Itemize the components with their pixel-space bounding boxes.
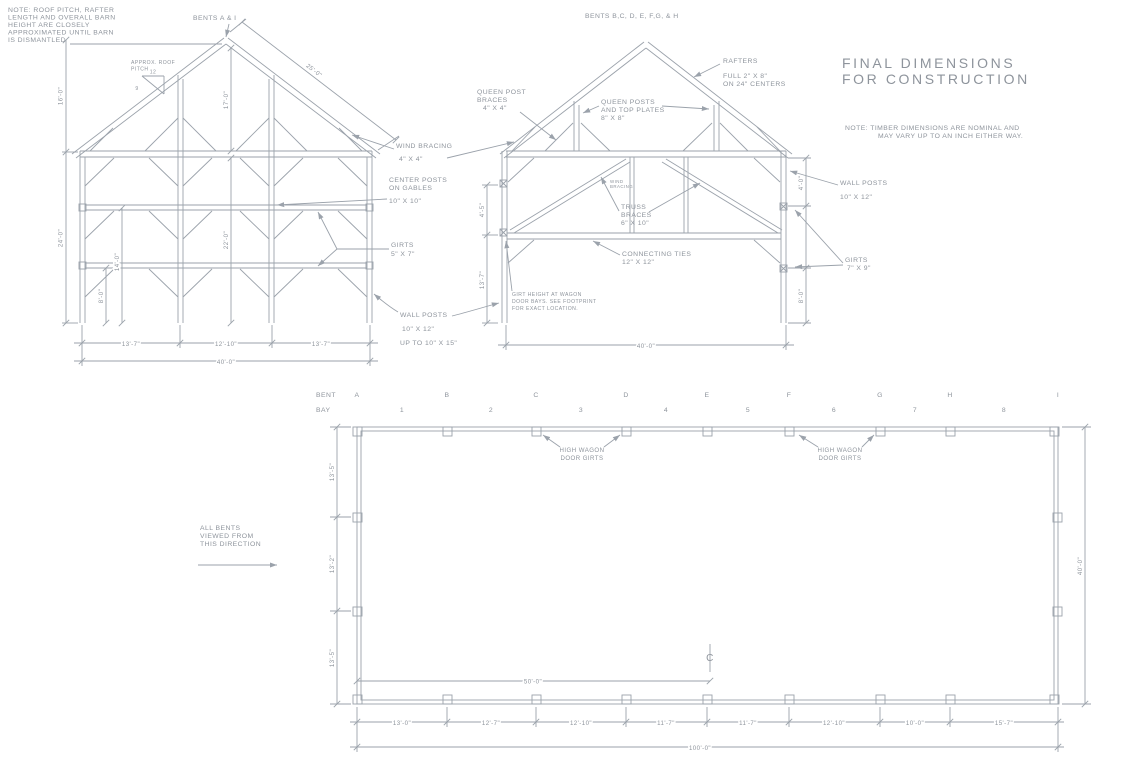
bent-letter: A — [355, 392, 360, 399]
callout-rafters: ON 24" CENTERS — [723, 81, 786, 88]
barn-blueprint: NOTE: ROOF PITCH, RAFTER LENGTH AND OVER… — [0, 0, 1140, 760]
dim-roof-height: 16'-0" — [58, 87, 65, 105]
bay-number: 2 — [489, 407, 493, 414]
note-top-left-line: NOTE: ROOF PITCH, RAFTER — [8, 7, 114, 14]
dim-plan-bay: 13'-0" — [393, 720, 411, 727]
callout-wall-posts-gable: 10" X 12" — [402, 326, 434, 333]
leader-lines — [226, 24, 843, 316]
gable-bent-dimensions — [62, 19, 399, 366]
dim-plan-bay: 12'-10" — [570, 720, 592, 727]
dim-plan-right: 40'-0" — [1077, 557, 1084, 575]
view-note: THIS DIRECTION — [200, 541, 261, 548]
view-note: ALL BENTS — [200, 525, 240, 532]
dim-plan-bay: 11'-7" — [739, 720, 757, 727]
callout-wind-bracing: 4" X 4" — [399, 156, 423, 163]
callout-truss-braces: TRUSS — [621, 204, 646, 211]
dim-plan-left: 13'-5" — [329, 649, 336, 667]
dim-plan-bay: 12'-7" — [482, 720, 500, 727]
bay-number: 6 — [832, 407, 836, 414]
callout-truss-braces: BRACES — [621, 212, 652, 219]
callout-queen-post-braces: 4" X 4" — [483, 105, 507, 112]
dim-right-upper: 4'-0" — [798, 176, 805, 190]
drawing-title: FOR CONSTRUCTION — [842, 71, 1030, 87]
interior-bent-heading: BENTS B,C, D, E, F,G, & H — [585, 13, 679, 20]
dim-overall-interior: 40'-0" — [637, 343, 655, 350]
bent-row-label: BENT — [316, 392, 336, 399]
note-top-left-line: HEIGHT ARE CLOSELY — [8, 22, 90, 29]
dim-ridge-height: 17'-0" — [223, 91, 230, 109]
callout-girts-gable: 5" X 7" — [391, 251, 415, 258]
bent-letter: F — [787, 392, 792, 399]
pitch-label: APPROX. ROOF — [131, 60, 175, 66]
gable-bent-structure — [72, 38, 380, 323]
dim-plan-left: 13'-2" — [329, 555, 336, 573]
dim-plan-bay: 10'-0" — [906, 720, 924, 727]
bent-letter: B — [445, 392, 450, 399]
callout-queen-post-braces: BRACES — [477, 97, 508, 104]
bent-letter: G — [877, 392, 883, 399]
high-wagon-door-label: HIGH WAGON — [560, 447, 605, 454]
view-note: VIEWED FROM — [200, 533, 254, 540]
callout-rafters: FULL 2" X 8" — [723, 73, 767, 80]
bent-letter: C — [533, 392, 538, 399]
bent-letter: I — [1057, 392, 1059, 399]
dim-left-upper: 4'-5" — [479, 203, 486, 217]
dim-overall-gable: 40'-0" — [217, 359, 235, 366]
callout-girts-interior: 7" X 9" — [847, 265, 871, 272]
pitch-label: PITCH — [131, 67, 149, 73]
callout-wall-posts-gable: UP TO 10" X 15" — [400, 340, 457, 347]
girt-height-note: GIRT HEIGHT AT WAGON — [512, 292, 582, 298]
callout-queen-posts: QUEEN POSTS — [601, 99, 655, 106]
dim-left-lower: 13'-7" — [479, 271, 486, 289]
callout-girts-interior: GIRTS — [845, 257, 868, 264]
bay-number: 8 — [1002, 407, 1006, 414]
callout-wall-posts-gable: WALL POSTS — [400, 312, 447, 319]
dim-plan-bay: 15'-7" — [995, 720, 1013, 727]
dim-bay: 13'-7" — [122, 341, 140, 348]
pitch-run: 12 — [150, 70, 157, 76]
girt-height-note: DOOR BAYS. SEE FOOTPRINT — [512, 299, 597, 305]
high-wagon-door-label: DOOR GIRTS — [561, 455, 604, 462]
callout-center-posts: 10" X 10" — [389, 198, 421, 205]
callout-queen-posts: AND TOP PLATES — [601, 107, 665, 114]
bay-number: 5 — [746, 407, 750, 414]
dim-girt-lower: 8'-0" — [98, 289, 105, 303]
callout-wall-posts-interior: 10" X 12" — [840, 194, 872, 201]
centerline-symbol: C — [706, 653, 714, 664]
high-wagon-door-label: DOOR GIRTS — [819, 455, 862, 462]
dim-plan-bay: 12'-10" — [823, 720, 845, 727]
dim-wall-height: 24'-0" — [58, 229, 65, 247]
callout-rafters: RAFTERS — [723, 58, 758, 65]
dim-bay: 13'-7" — [312, 341, 330, 348]
dim-interior: 22'-0" — [223, 231, 230, 249]
callout-queen-posts: 8" X 8" — [601, 115, 625, 122]
bent-letter: D — [623, 392, 628, 399]
callout-connecting-ties: 12" X 12" — [622, 259, 654, 266]
callout-wind-bracing: WIND BRACING — [396, 143, 452, 150]
bay-number: 1 — [400, 407, 404, 414]
dim-plan-half: 50'-0" — [524, 679, 542, 686]
drawing-title: FINAL DIMENSIONS — [842, 55, 1015, 71]
dim-plan-bay: 11'-7" — [657, 720, 675, 727]
bent-letter: H — [947, 392, 952, 399]
callout-wall-posts-interior: WALL POSTS — [840, 180, 887, 187]
callout-center-posts: ON GABLES — [389, 185, 432, 192]
note-right: MAY VARY UP TO AN INCH EITHER WAY. — [878, 133, 1023, 140]
dim-right-lower: 8'-0" — [798, 289, 805, 303]
callout-girts-gable: GIRTS — [391, 242, 414, 249]
bay-number: 7 — [913, 407, 917, 414]
gable-bent-heading: BENTS A & I — [193, 15, 236, 22]
bay-number: 3 — [579, 407, 583, 414]
callout-truss-braces: 6" X 10" — [621, 220, 649, 227]
girt-height-note: FOR EXACT LOCATION. — [512, 306, 578, 312]
note-top-left-line: APPROXIMATED UNTIL BARN — [8, 30, 114, 37]
callout-center-posts: CENTER POSTS — [389, 177, 447, 184]
note-top-left-line: LENGTH AND OVERALL BARN — [8, 15, 116, 22]
pitch-rise: 9 — [135, 86, 138, 92]
dim-bay: 12'-10" — [215, 341, 237, 348]
bay-row-label: BAY — [316, 407, 330, 414]
dim-plan-left: 13'-5" — [329, 463, 336, 481]
note-right: NOTE: TIMBER DIMENSIONS ARE NOMINAL AND — [845, 125, 1020, 132]
high-wagon-door-label: HIGH WAGON — [818, 447, 863, 454]
callout-connecting-ties: CONNECTING TIES — [622, 251, 691, 258]
bent-letter: E — [705, 392, 710, 399]
callout-queen-post-braces: QUEEN POST — [477, 89, 526, 96]
dim-girt-upper: 14'-0" — [114, 253, 121, 271]
dim-plan-overall: 100'-0" — [689, 745, 711, 752]
bay-number: 4 — [664, 407, 668, 414]
callout-wind-bracing-small: BRACING — [610, 184, 633, 189]
note-top-left-line: IS DISMANTLED — [8, 37, 66, 44]
